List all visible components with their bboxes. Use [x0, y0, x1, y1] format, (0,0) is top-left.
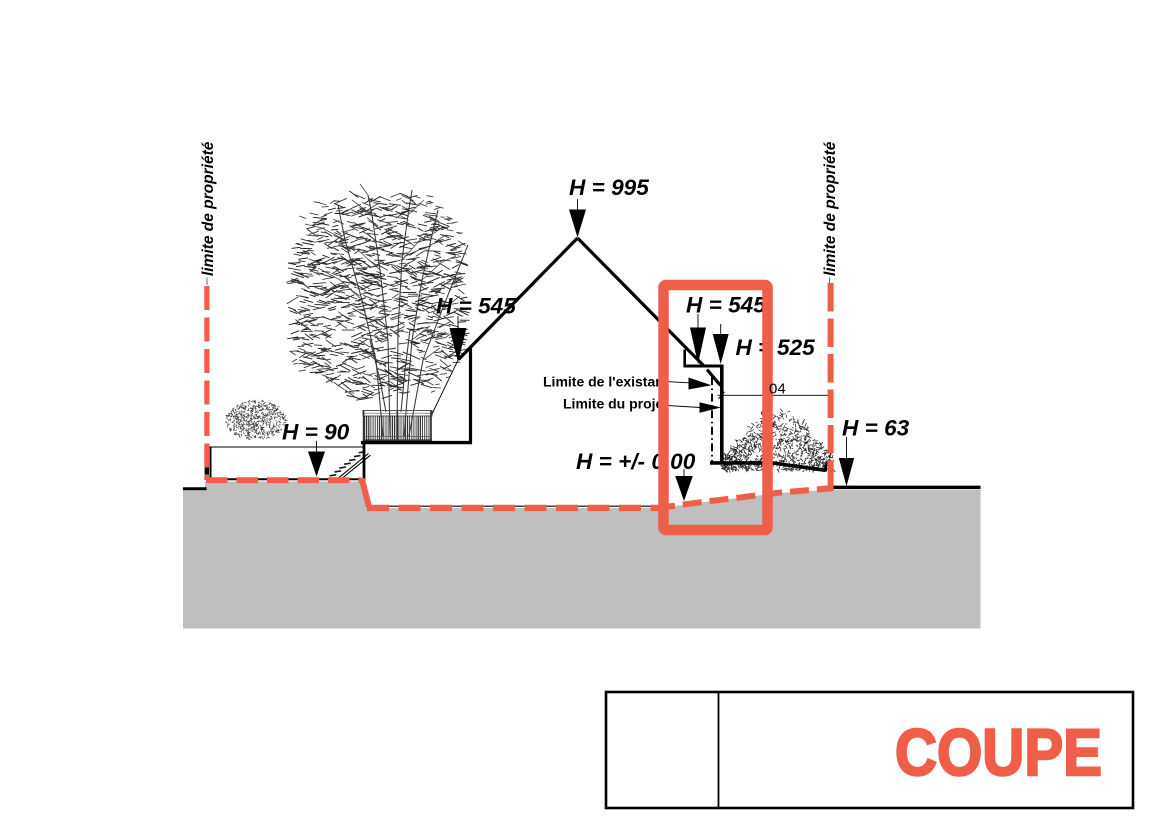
svg-text:H = 63: H = 63 [842, 416, 910, 441]
svg-text:H = +/- 0.00: H = +/- 0.00 [576, 449, 696, 474]
svg-text:525: 525 [777, 335, 815, 360]
svg-text:Limite de l'existant: Limite de l'existant [543, 374, 669, 390]
svg-text:H = 545: H = 545 [686, 293, 766, 318]
svg-text:H = 90: H = 90 [282, 420, 350, 445]
svg-text:H = 545: H = 545 [436, 294, 516, 319]
svg-text:COUPE: COUPE [895, 715, 1102, 789]
svg-text:H = 995: H = 995 [569, 175, 649, 200]
svg-text:04: 04 [769, 381, 786, 398]
svg-text:limite de propriété: limite de propriété [822, 141, 839, 276]
svg-text:Limite du projet: Limite du projet [563, 396, 668, 412]
svg-text:limite de propriété: limite de propriété [200, 141, 217, 276]
